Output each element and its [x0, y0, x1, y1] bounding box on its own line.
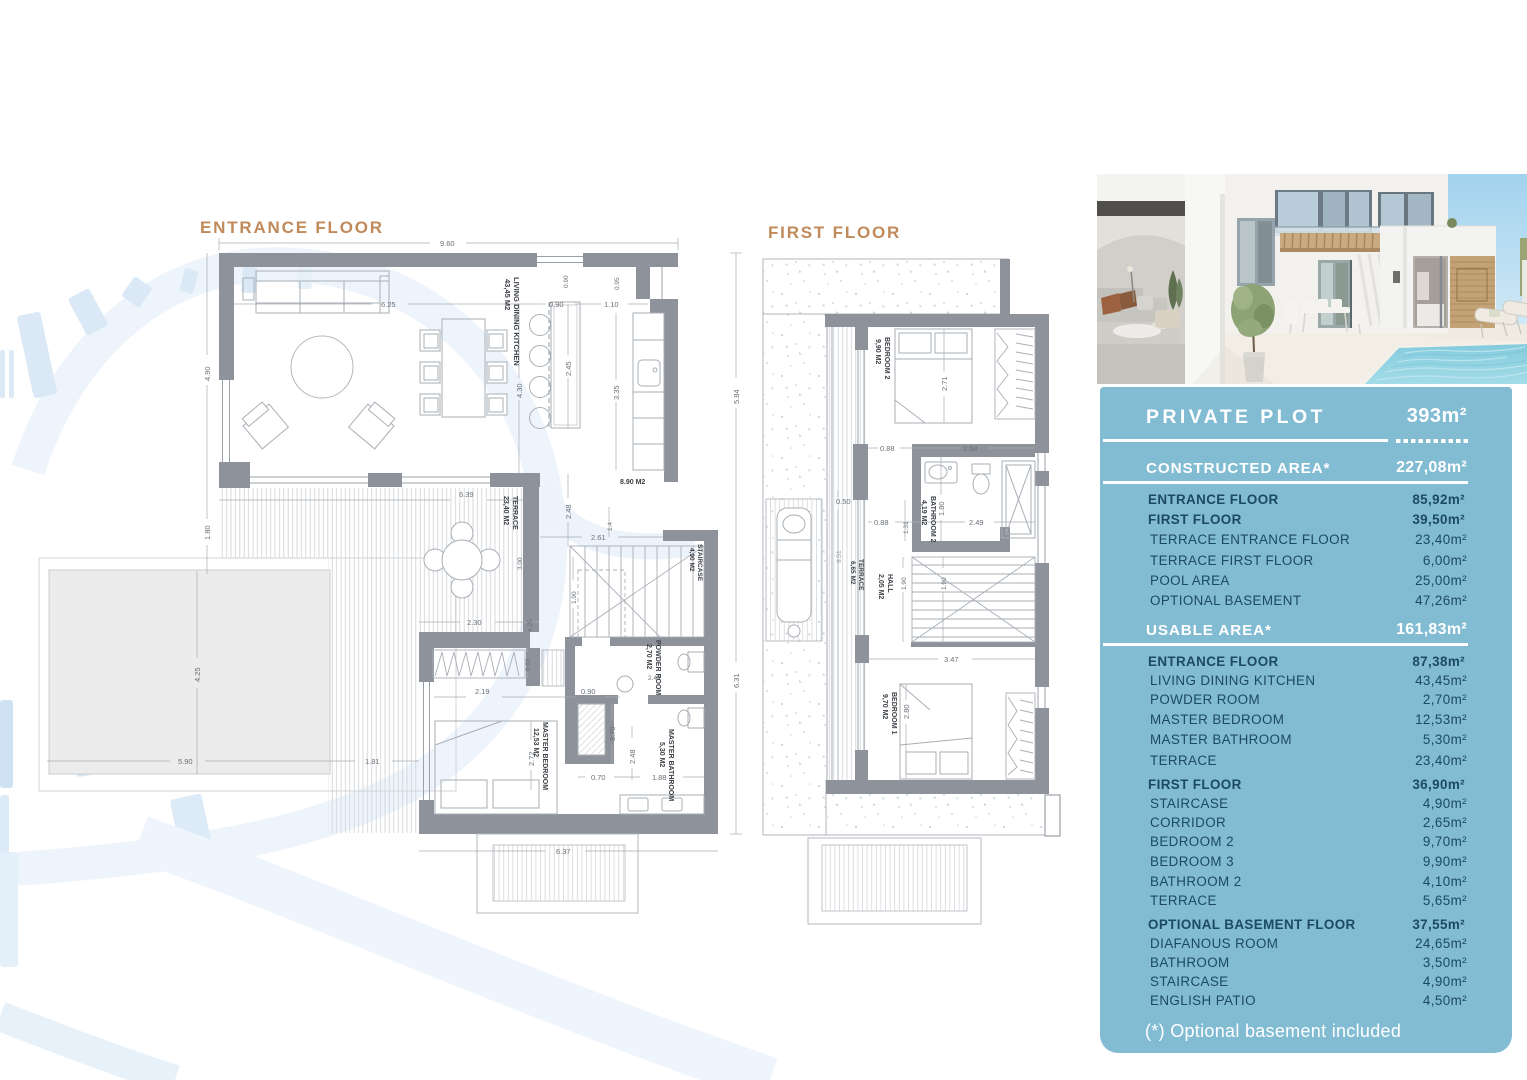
svg-text:BEDROOM 2: BEDROOM 2	[883, 337, 890, 380]
svg-text:6.31: 6.31	[732, 673, 741, 688]
svg-text:MASTER BEDROOM: MASTER BEDROOM	[541, 722, 548, 790]
svg-text:23,40 M2: 23,40 M2	[502, 496, 509, 525]
svg-text:0.90: 0.90	[581, 687, 596, 696]
svg-text:FIRST FLOOR: FIRST FLOOR	[768, 223, 901, 242]
svg-text:1.90: 1.90	[901, 577, 908, 590]
svg-text:TERRACE: TERRACE	[511, 496, 518, 530]
svg-text:43,45 M2: 43,45 M2	[503, 279, 512, 310]
svg-text:HALL: HALL	[886, 574, 893, 593]
svg-text:3.35: 3.35	[612, 385, 621, 400]
svg-text:1.31: 1.31	[903, 521, 910, 534]
svg-text:1.4: 1.4	[607, 522, 614, 531]
svg-text:ENTRANCE FLOOR: ENTRANCE FLOOR	[200, 218, 384, 237]
svg-text:STAIRCASE: STAIRCASE	[696, 544, 703, 582]
svg-text:8.90 M2: 8.90 M2	[620, 479, 645, 486]
svg-text:0.93: 0.93	[525, 658, 532, 671]
svg-text:2.49: 2.49	[969, 518, 984, 527]
svg-text:12,53 M2: 12,53 M2	[532, 728, 539, 757]
svg-text:6.37: 6.37	[556, 847, 571, 856]
svg-text:1.80: 1.80	[937, 501, 946, 516]
svg-text:0.70: 0.70	[591, 773, 606, 782]
svg-text:5.84: 5.84	[732, 389, 741, 404]
svg-text:9.51: 9.51	[836, 550, 843, 563]
svg-text:0.50: 0.50	[836, 497, 851, 506]
svg-text:0.90: 0.90	[563, 275, 570, 288]
svg-text:POWDER ROOM: POWDER ROOM	[654, 640, 661, 695]
svg-text:5,30 M2: 5,30 M2	[658, 742, 665, 767]
svg-text:2.48: 2.48	[628, 749, 637, 764]
svg-text:1.10: 1.10	[604, 300, 619, 309]
svg-text:9,70 M2: 9,70 M2	[881, 694, 888, 719]
svg-text:BEDROOM 1: BEDROOM 1	[890, 692, 897, 735]
svg-text:0.90: 0.90	[549, 300, 564, 309]
svg-text:9,90 M2: 9,90 M2	[874, 339, 881, 364]
svg-text:2.48: 2.48	[564, 504, 573, 519]
svg-text:2.71: 2.71	[940, 376, 949, 391]
svg-text:2.45: 2.45	[564, 361, 573, 376]
svg-text:9.60: 9.60	[440, 239, 455, 248]
svg-text:1.80: 1.80	[203, 525, 212, 540]
svg-text:3.70: 3.70	[608, 726, 617, 741]
svg-text:MASTER BATHROOM: MASTER BATHROOM	[667, 729, 674, 801]
svg-text:6.39: 6.39	[459, 490, 474, 499]
svg-text:BATHROOM 2: BATHROOM 2	[929, 496, 936, 543]
svg-text:2,05 M2: 2,05 M2	[877, 574, 884, 599]
svg-text:0.88: 0.88	[874, 518, 889, 527]
svg-text:4,19 M2: 4,19 M2	[920, 500, 927, 525]
svg-text:5.90: 5.90	[178, 757, 193, 766]
svg-text:2.30: 2.30	[467, 618, 482, 627]
svg-text:4.25: 4.25	[193, 667, 202, 682]
svg-text:2.19: 2.19	[475, 687, 490, 696]
svg-text:2.58: 2.58	[963, 444, 978, 453]
svg-text:TERRACE: TERRACE	[857, 559, 864, 591]
svg-text:3.47: 3.47	[944, 655, 959, 664]
svg-text:4.25: 4.25	[527, 619, 534, 632]
svg-text:1.90: 1.90	[941, 577, 948, 590]
svg-text:2.80: 2.80	[902, 704, 911, 719]
svg-text:0.88: 0.88	[880, 444, 895, 453]
svg-text:4.90: 4.90	[203, 366, 212, 381]
svg-text:1.90: 1.90	[571, 591, 578, 604]
svg-text:3.00: 3.00	[517, 557, 524, 570]
svg-text:2.61: 2.61	[591, 533, 606, 542]
svg-text:1.88: 1.88	[652, 773, 667, 782]
svg-text:LIVING DINING KITCHEN: LIVING DINING KITCHEN	[512, 277, 521, 366]
svg-text:4.30: 4.30	[515, 383, 524, 398]
svg-text:6.25: 6.25	[381, 300, 396, 309]
svg-text:6,65 M2: 6,65 M2	[849, 561, 856, 585]
svg-text:2,70 M2: 2,70 M2	[645, 644, 652, 669]
svg-text:1.81: 1.81	[365, 757, 380, 766]
svg-text:0.95: 0.95	[614, 277, 621, 290]
svg-text:4,90 M2: 4,90 M2	[688, 548, 695, 572]
